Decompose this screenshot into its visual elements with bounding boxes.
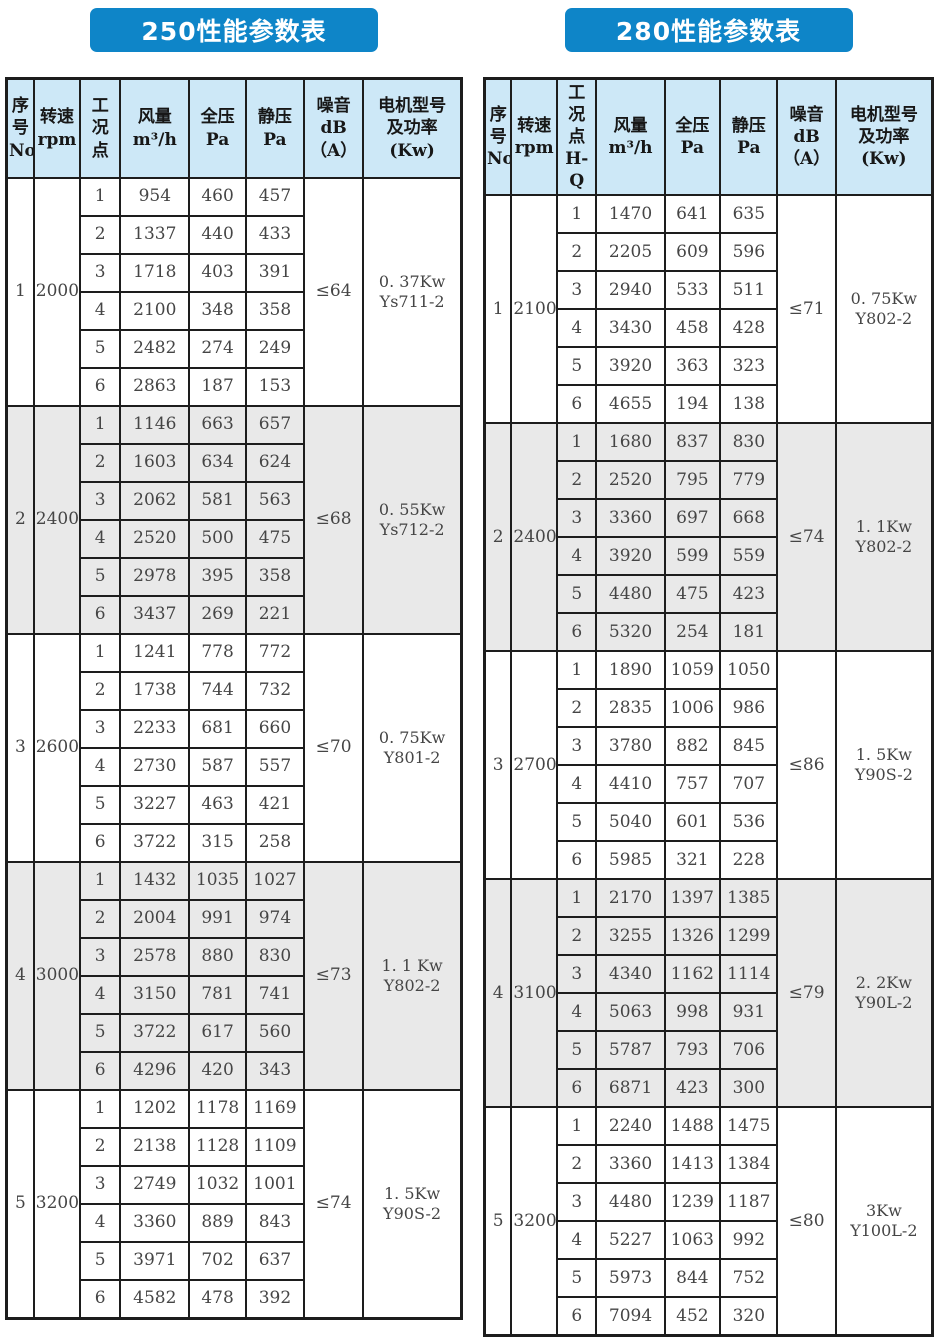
- airflow-cell: 2170: [596, 879, 664, 917]
- total-pressure-cell: 403: [189, 254, 245, 292]
- operating-point-cell: 4: [557, 1221, 596, 1259]
- static-pressure-cell: 358: [246, 558, 304, 596]
- operating-point-cell: 2: [557, 1145, 596, 1183]
- airflow-cell: 2863: [120, 368, 189, 406]
- airflow-cell: 4340: [596, 955, 664, 993]
- airflow-cell: 2578: [120, 938, 189, 976]
- serial-no-cell: 1: [485, 195, 512, 423]
- static-pressure-cell: 559: [720, 537, 777, 575]
- noise-cell: ≤71: [777, 195, 835, 423]
- serial-no-cell: 2: [485, 423, 512, 651]
- group-4-row-1: 430001143210351027≤731. 1 Kw Y802-2: [7, 862, 462, 900]
- static-pressure-cell: 1384: [720, 1145, 777, 1183]
- motor-cell: 0. 37Kw Ys711-2: [363, 178, 461, 406]
- group-5-row-1: 532001224014881475≤803Kw Y100L-2: [485, 1107, 933, 1145]
- total-pressure-cell: 460: [189, 178, 245, 216]
- static-pressure-cell: 249: [246, 330, 304, 368]
- total-pressure-cell: 463: [189, 786, 245, 824]
- total-pressure-cell: 1128: [189, 1128, 245, 1166]
- operating-point-cell: 5: [80, 1014, 120, 1052]
- static-pressure-cell: 1109: [246, 1128, 304, 1166]
- total-pressure-cell: 478: [189, 1280, 245, 1318]
- airflow-cell: 2062: [120, 482, 189, 520]
- column-header-1: 转速 rpm: [511, 79, 557, 196]
- total-pressure-cell: 641: [665, 195, 721, 233]
- table-250-header: 序 号 No转速 rpm工 况 点风量 m³/h全压 Pa静压 Pa噪音 dB …: [7, 79, 462, 179]
- total-pressure-cell: 795: [665, 461, 721, 499]
- airflow-cell: 2482: [120, 330, 189, 368]
- static-pressure-cell: 830: [720, 423, 777, 461]
- motor-cell: 1. 1 Kw Y802-2: [363, 862, 461, 1090]
- total-pressure-cell: 321: [665, 841, 721, 879]
- airflow-cell: 2940: [596, 271, 664, 309]
- total-pressure-cell: 1006: [665, 689, 721, 727]
- total-pressure-cell: 844: [665, 1259, 721, 1297]
- column-header-0: 序 号 No: [7, 79, 34, 179]
- airflow-cell: 2138: [120, 1128, 189, 1166]
- operating-point-cell: 3: [557, 499, 596, 537]
- operating-point-cell: 1: [557, 1107, 596, 1145]
- performance-table-280: 序 号 No转速 rpm工 况 点 H-Q风量 m³/h全压 Pa静压 Pa噪音…: [483, 77, 934, 1337]
- operating-point-cell: 5: [557, 1031, 596, 1069]
- operating-point-cell: 4: [80, 976, 120, 1014]
- serial-no-cell: 2: [7, 406, 34, 634]
- airflow-cell: 1890: [596, 651, 664, 689]
- total-pressure-cell: 697: [665, 499, 721, 537]
- operating-point-cell: 3: [557, 727, 596, 765]
- noise-cell: ≤74: [304, 1090, 363, 1318]
- airflow-cell: 1718: [120, 254, 189, 292]
- airflow-cell: 2004: [120, 900, 189, 938]
- static-pressure-cell: 536: [720, 803, 777, 841]
- static-pressure-cell: 992: [720, 1221, 777, 1259]
- total-pressure-cell: 395: [189, 558, 245, 596]
- motor-cell: 1. 5Kw Y90S-2: [836, 651, 933, 879]
- group-4-row-1: 431001217013971385≤792. 2Kw Y90L-2: [485, 879, 933, 917]
- total-pressure-cell: 1032: [189, 1166, 245, 1204]
- operating-point-cell: 5: [557, 1259, 596, 1297]
- total-pressure-cell: 1063: [665, 1221, 721, 1259]
- static-pressure-cell: 845: [720, 727, 777, 765]
- airflow-cell: 2520: [596, 461, 664, 499]
- panel-250: 250性能参数表 序 号 No转速 rpm工 况 点风量 m³/h全压 Pa静压…: [5, 0, 463, 1337]
- total-pressure-cell: 1413: [665, 1145, 721, 1183]
- operating-point-cell: 5: [80, 558, 120, 596]
- serial-no-cell: 5: [7, 1090, 34, 1318]
- operating-point-cell: 5: [80, 330, 120, 368]
- static-pressure-cell: 830: [246, 938, 304, 976]
- motor-cell: 1. 1Kw Y802-2: [836, 423, 933, 651]
- static-pressure-cell: 1114: [720, 955, 777, 993]
- total-pressure-cell: 423: [665, 1069, 721, 1107]
- operating-point-cell: 1: [557, 195, 596, 233]
- motor-cell: 2. 2Kw Y90L-2: [836, 879, 933, 1107]
- static-pressure-cell: 358: [246, 292, 304, 330]
- column-header-1: 转速 rpm: [34, 79, 80, 179]
- operating-point-cell: 5: [80, 1242, 120, 1280]
- airflow-cell: 4296: [120, 1052, 189, 1090]
- airflow-cell: 3437: [120, 596, 189, 634]
- airflow-cell: 5040: [596, 803, 664, 841]
- static-pressure-cell: 343: [246, 1052, 304, 1090]
- airflow-cell: 2730: [120, 748, 189, 786]
- total-pressure-cell: 1397: [665, 879, 721, 917]
- airflow-cell: 3360: [120, 1204, 189, 1242]
- airflow-cell: 3920: [596, 537, 664, 575]
- static-pressure-cell: 258: [246, 824, 304, 862]
- static-pressure-cell: 741: [246, 976, 304, 1014]
- static-pressure-cell: 392: [246, 1280, 304, 1318]
- total-pressure-cell: 452: [665, 1297, 721, 1335]
- airflow-cell: 4480: [596, 1183, 664, 1221]
- static-pressure-cell: 637: [246, 1242, 304, 1280]
- static-pressure-cell: 320: [720, 1297, 777, 1335]
- noise-cell: ≤70: [304, 634, 363, 862]
- operating-point-cell: 6: [557, 1297, 596, 1335]
- airflow-cell: 5227: [596, 1221, 664, 1259]
- column-header-7: 电机型号 及功率 (Kw): [363, 79, 461, 179]
- total-pressure-cell: 889: [189, 1204, 245, 1242]
- column-header-0: 序 号 No: [485, 79, 512, 196]
- airflow-cell: 1202: [120, 1090, 189, 1128]
- airflow-cell: 4410: [596, 765, 664, 803]
- serial-no-cell: 4: [7, 862, 34, 1090]
- motor-cell: 1. 5Kw Y90S-2: [363, 1090, 461, 1318]
- noise-cell: ≤74: [777, 423, 835, 651]
- static-pressure-cell: 457: [246, 178, 304, 216]
- operating-point-cell: 6: [80, 1280, 120, 1318]
- column-header-4: 全压 Pa: [665, 79, 721, 196]
- static-pressure-cell: 660: [246, 710, 304, 748]
- total-pressure-cell: 500: [189, 520, 245, 558]
- airflow-cell: 1470: [596, 195, 664, 233]
- operating-point-cell: 2: [80, 672, 120, 710]
- table-250-body: 120001954460457≤640. 37Kw Ys711-22133744…: [7, 178, 462, 1318]
- static-pressure-cell: 433: [246, 216, 304, 254]
- rpm-cell: 3000: [34, 862, 80, 1090]
- serial-no-cell: 5: [485, 1107, 512, 1335]
- total-pressure-cell: 1162: [665, 955, 721, 993]
- total-pressure-cell: 681: [189, 710, 245, 748]
- operating-point-cell: 1: [557, 651, 596, 689]
- static-pressure-cell: 707: [720, 765, 777, 803]
- column-header-5: 静压 Pa: [246, 79, 304, 179]
- total-pressure-cell: 458: [665, 309, 721, 347]
- static-pressure-cell: 428: [720, 309, 777, 347]
- static-pressure-cell: 635: [720, 195, 777, 233]
- operating-point-cell: 2: [557, 689, 596, 727]
- total-pressure-cell: 533: [665, 271, 721, 309]
- total-pressure-cell: 348: [189, 292, 245, 330]
- static-pressure-cell: 1299: [720, 917, 777, 955]
- operating-point-cell: 4: [557, 765, 596, 803]
- catalog-page: 250性能参数表 序 号 No转速 rpm工 况 点风量 m³/h全压 Pa静压…: [0, 0, 937, 1337]
- airflow-cell: 7094: [596, 1297, 664, 1335]
- static-pressure-cell: 779: [720, 461, 777, 499]
- static-pressure-cell: 563: [246, 482, 304, 520]
- noise-cell: ≤80: [777, 1107, 835, 1335]
- operating-point-cell: 1: [557, 423, 596, 461]
- noise-cell: ≤86: [777, 651, 835, 879]
- rpm-cell: 2600: [34, 634, 80, 862]
- airflow-cell: 2100: [120, 292, 189, 330]
- group-3-row-1: 327001189010591050≤861. 5Kw Y90S-2: [485, 651, 933, 689]
- total-pressure-cell: 194: [665, 385, 721, 423]
- operating-point-cell: 3: [557, 955, 596, 993]
- static-pressure-cell: 1169: [246, 1090, 304, 1128]
- total-pressure-cell: 609: [665, 233, 721, 271]
- motor-cell: 0. 55Kw Ys712-2: [363, 406, 461, 634]
- static-pressure-cell: 732: [246, 672, 304, 710]
- total-pressure-cell: 617: [189, 1014, 245, 1052]
- airflow-cell: 2520: [120, 520, 189, 558]
- total-pressure-cell: 581: [189, 482, 245, 520]
- static-pressure-cell: 1475: [720, 1107, 777, 1145]
- operating-point-cell: 2: [557, 233, 596, 271]
- operating-point-cell: 2: [557, 461, 596, 499]
- airflow-cell: 3920: [596, 347, 664, 385]
- serial-no-cell: 4: [485, 879, 512, 1107]
- static-pressure-cell: 475: [246, 520, 304, 558]
- airflow-cell: 2233: [120, 710, 189, 748]
- operating-point-cell: 4: [80, 292, 120, 330]
- operating-point-cell: 6: [80, 596, 120, 634]
- airflow-cell: 4582: [120, 1280, 189, 1318]
- airflow-cell: 5985: [596, 841, 664, 879]
- total-pressure-cell: 420: [189, 1052, 245, 1090]
- operating-point-cell: 4: [557, 993, 596, 1031]
- total-pressure-cell: 274: [189, 330, 245, 368]
- total-pressure-cell: 440: [189, 216, 245, 254]
- performance-table-250: 序 号 No转速 rpm工 况 点风量 m³/h全压 Pa静压 Pa噪音 dB …: [5, 77, 463, 1320]
- serial-no-cell: 3: [485, 651, 512, 879]
- airflow-cell: 1432: [120, 862, 189, 900]
- airflow-cell: 1337: [120, 216, 189, 254]
- operating-point-cell: 4: [80, 520, 120, 558]
- airflow-cell: 2240: [596, 1107, 664, 1145]
- static-pressure-cell: 1001: [246, 1166, 304, 1204]
- operating-point-cell: 2: [80, 900, 120, 938]
- airflow-cell: 3780: [596, 727, 664, 765]
- total-pressure-cell: 880: [189, 938, 245, 976]
- static-pressure-cell: 931: [720, 993, 777, 1031]
- noise-cell: ≤64: [304, 178, 363, 406]
- column-header-7: 电机型号 及功率 (Kw): [836, 79, 933, 196]
- noise-cell: ≤73: [304, 862, 363, 1090]
- total-pressure-cell: 634: [189, 444, 245, 482]
- airflow-cell: 1738: [120, 672, 189, 710]
- total-pressure-cell: 1239: [665, 1183, 721, 1221]
- operating-point-cell: 5: [557, 575, 596, 613]
- total-pressure-cell: 599: [665, 537, 721, 575]
- airflow-cell: 954: [120, 178, 189, 216]
- airflow-cell: 2978: [120, 558, 189, 596]
- operating-point-cell: 6: [557, 385, 596, 423]
- static-pressure-cell: 138: [720, 385, 777, 423]
- operating-point-cell: 4: [80, 1204, 120, 1242]
- total-pressure-cell: 998: [665, 993, 721, 1031]
- total-pressure-cell: 757: [665, 765, 721, 803]
- operating-point-cell: 1: [557, 879, 596, 917]
- total-pressure-cell: 837: [665, 423, 721, 461]
- static-pressure-cell: 986: [720, 689, 777, 727]
- static-pressure-cell: 421: [246, 786, 304, 824]
- static-pressure-cell: 668: [720, 499, 777, 537]
- airflow-cell: 1146: [120, 406, 189, 444]
- airflow-cell: 5973: [596, 1259, 664, 1297]
- airflow-cell: 2749: [120, 1166, 189, 1204]
- operating-point-cell: 1: [80, 178, 120, 216]
- total-pressure-cell: 1178: [189, 1090, 245, 1128]
- static-pressure-cell: 323: [720, 347, 777, 385]
- airflow-cell: 3722: [120, 824, 189, 862]
- operating-point-cell: 5: [80, 786, 120, 824]
- static-pressure-cell: 153: [246, 368, 304, 406]
- total-pressure-cell: 663: [189, 406, 245, 444]
- group-2-row-1: 2240011680837830≤741. 1Kw Y802-2: [485, 423, 933, 461]
- operating-point-cell: 4: [557, 537, 596, 575]
- column-header-5: 静压 Pa: [720, 79, 777, 196]
- static-pressure-cell: 752: [720, 1259, 777, 1297]
- table-280-header: 序 号 No转速 rpm工 况 点 H-Q风量 m³/h全压 Pa静压 Pa噪音…: [485, 79, 933, 196]
- column-header-6: 噪音 dB （A）: [304, 79, 363, 179]
- total-pressure-cell: 475: [665, 575, 721, 613]
- static-pressure-cell: 974: [246, 900, 304, 938]
- total-pressure-cell: 793: [665, 1031, 721, 1069]
- airflow-cell: 1680: [596, 423, 664, 461]
- airflow-cell: 6871: [596, 1069, 664, 1107]
- static-pressure-cell: 772: [246, 634, 304, 672]
- airflow-cell: 2835: [596, 689, 664, 727]
- operating-point-cell: 1: [80, 634, 120, 672]
- airflow-cell: 3150: [120, 976, 189, 1014]
- motor-cell: 0. 75Kw Y801-2: [363, 634, 461, 862]
- total-pressure-cell: 315: [189, 824, 245, 862]
- group-1-row-1: 1210011470641635≤710. 75Kw Y802-2: [485, 195, 933, 233]
- total-pressure-cell: 744: [189, 672, 245, 710]
- airflow-cell: 3360: [596, 1145, 664, 1183]
- total-pressure-cell: 1035: [189, 862, 245, 900]
- operating-point-cell: 4: [557, 309, 596, 347]
- operating-point-cell: 2: [80, 1128, 120, 1166]
- airflow-cell: 3722: [120, 1014, 189, 1052]
- total-pressure-cell: 1488: [665, 1107, 721, 1145]
- operating-point-cell: 2: [80, 216, 120, 254]
- group-3-row-1: 3260011241778772≤700. 75Kw Y801-2: [7, 634, 462, 672]
- serial-no-cell: 1: [7, 178, 34, 406]
- static-pressure-cell: 300: [720, 1069, 777, 1107]
- rpm-cell: 2400: [511, 423, 557, 651]
- total-pressure-cell: 587: [189, 748, 245, 786]
- motor-cell: 3Kw Y100L-2: [836, 1107, 933, 1335]
- rpm-cell: 3200: [511, 1107, 557, 1335]
- rpm-cell: 2700: [511, 651, 557, 879]
- motor-cell: 0. 75Kw Y802-2: [836, 195, 933, 423]
- operating-point-cell: 6: [557, 841, 596, 879]
- airflow-cell: 4480: [596, 575, 664, 613]
- operating-point-cell: 5: [557, 803, 596, 841]
- airflow-cell: 3430: [596, 309, 664, 347]
- table-title-280: 280性能参数表: [565, 8, 853, 52]
- operating-point-cell: 3: [557, 1183, 596, 1221]
- static-pressure-cell: 706: [720, 1031, 777, 1069]
- total-pressure-cell: 601: [665, 803, 721, 841]
- total-pressure-cell: 778: [189, 634, 245, 672]
- group-1-row-1: 120001954460457≤640. 37Kw Ys711-2: [7, 178, 462, 216]
- total-pressure-cell: 1059: [665, 651, 721, 689]
- static-pressure-cell: 423: [720, 575, 777, 613]
- total-pressure-cell: 187: [189, 368, 245, 406]
- noise-cell: ≤68: [304, 406, 363, 634]
- operating-point-cell: 2: [80, 444, 120, 482]
- static-pressure-cell: 391: [246, 254, 304, 292]
- static-pressure-cell: 1027: [246, 862, 304, 900]
- rpm-cell: 2100: [511, 195, 557, 423]
- static-pressure-cell: 221: [246, 596, 304, 634]
- panel-280: 280性能参数表 序 号 No转速 rpm工 况 点 H-Q风量 m³/h全压 …: [483, 0, 934, 1337]
- operating-point-cell: 3: [80, 254, 120, 292]
- airflow-cell: 3227: [120, 786, 189, 824]
- column-header-3: 风量 m³/h: [120, 79, 189, 179]
- total-pressure-cell: 363: [665, 347, 721, 385]
- group-2-row-1: 2240011146663657≤680. 55Kw Ys712-2: [7, 406, 462, 444]
- total-pressure-cell: 254: [665, 613, 721, 651]
- airflow-cell: 5063: [596, 993, 664, 1031]
- column-header-2: 工 况 点: [80, 79, 120, 179]
- total-pressure-cell: 702: [189, 1242, 245, 1280]
- header-row: 序 号 No转速 rpm工 况 点风量 m³/h全压 Pa静压 Pa噪音 dB …: [7, 79, 462, 179]
- rpm-cell: 2400: [34, 406, 80, 634]
- rpm-cell: 3200: [34, 1090, 80, 1318]
- operating-point-cell: 2: [557, 917, 596, 955]
- column-header-3: 风量 m³/h: [596, 79, 664, 196]
- airflow-cell: 1241: [120, 634, 189, 672]
- total-pressure-cell: 882: [665, 727, 721, 765]
- static-pressure-cell: 181: [720, 613, 777, 651]
- airflow-cell: 3971: [120, 1242, 189, 1280]
- total-pressure-cell: 1326: [665, 917, 721, 955]
- static-pressure-cell: 1050: [720, 651, 777, 689]
- operating-point-cell: 6: [80, 824, 120, 862]
- total-pressure-cell: 269: [189, 596, 245, 634]
- operating-point-cell: 1: [80, 406, 120, 444]
- operating-point-cell: 1: [80, 1090, 120, 1128]
- airflow-cell: 2205: [596, 233, 664, 271]
- table-280-body: 1210011470641635≤710. 75Kw Y802-22220560…: [485, 195, 933, 1335]
- column-header-6: 噪音 dB （A）: [777, 79, 835, 196]
- column-header-4: 全压 Pa: [189, 79, 245, 179]
- airflow-cell: 3255: [596, 917, 664, 955]
- airflow-cell: 5787: [596, 1031, 664, 1069]
- static-pressure-cell: 560: [246, 1014, 304, 1052]
- group-5-row-1: 532001120211781169≤741. 5Kw Y90S-2: [7, 1090, 462, 1128]
- operating-point-cell: 5: [557, 347, 596, 385]
- rpm-cell: 3100: [511, 879, 557, 1107]
- operating-point-cell: 4: [80, 748, 120, 786]
- rpm-cell: 2000: [34, 178, 80, 406]
- static-pressure-cell: 511: [720, 271, 777, 309]
- airflow-cell: 4655: [596, 385, 664, 423]
- static-pressure-cell: 557: [246, 748, 304, 786]
- operating-point-cell: 3: [80, 1166, 120, 1204]
- column-header-2: 工 况 点 H-Q: [557, 79, 596, 196]
- static-pressure-cell: 228: [720, 841, 777, 879]
- operating-point-cell: 3: [80, 482, 120, 520]
- static-pressure-cell: 624: [246, 444, 304, 482]
- operating-point-cell: 6: [557, 1069, 596, 1107]
- static-pressure-cell: 843: [246, 1204, 304, 1242]
- airflow-cell: 5320: [596, 613, 664, 651]
